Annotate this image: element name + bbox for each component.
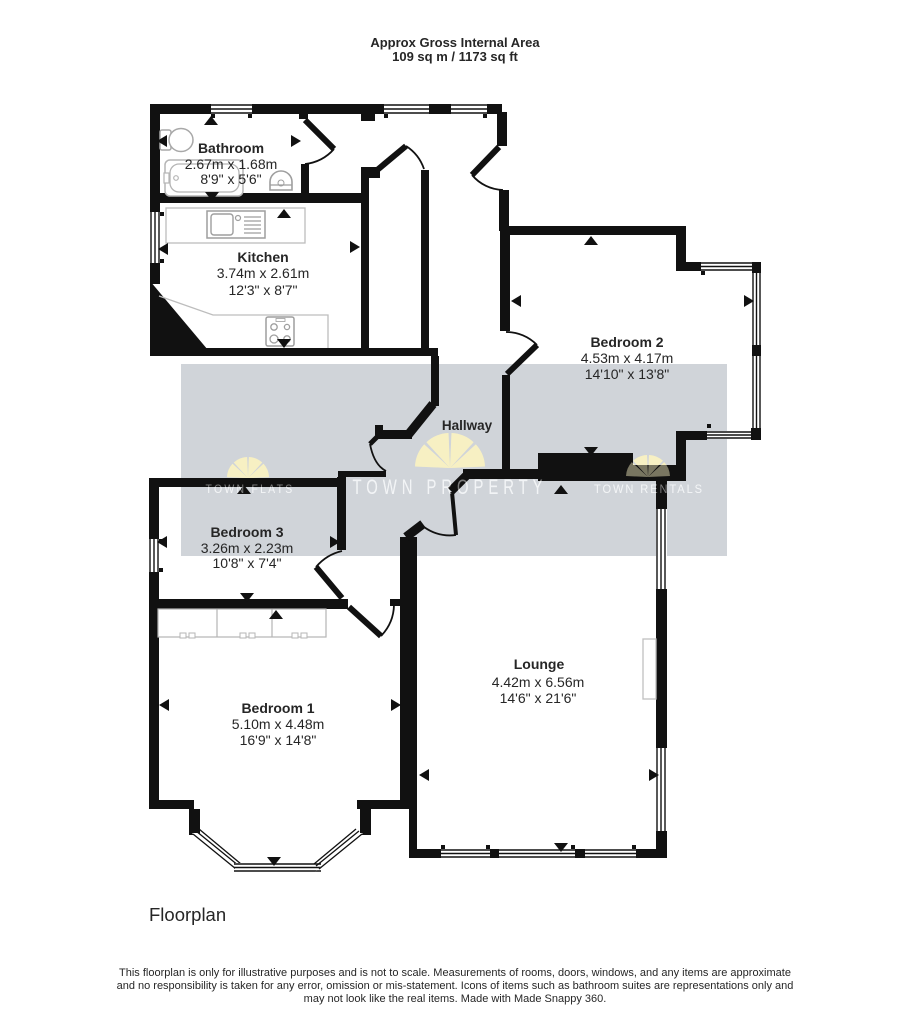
svg-text:5.10m x 4.48m: 5.10m x 4.48m xyxy=(232,716,325,732)
svg-text:Approx Gross Internal Area: Approx Gross Internal Area xyxy=(370,35,540,50)
svg-text:Lounge: Lounge xyxy=(514,656,565,672)
svg-text:3.26m x 2.23m: 3.26m x 2.23m xyxy=(201,540,294,556)
svg-text:14'6" x 21'6": 14'6" x 21'6" xyxy=(500,690,577,706)
svg-text:2.67m x 1.68m: 2.67m x 1.68m xyxy=(185,156,278,172)
svg-text:12'3" x 8'7": 12'3" x 8'7" xyxy=(229,282,298,298)
svg-text:Kitchen: Kitchen xyxy=(237,249,288,265)
svg-text:TOWN PROPERTY: TOWN PROPERTY xyxy=(353,476,548,499)
svg-text:Bedroom 1: Bedroom 1 xyxy=(241,700,314,716)
svg-text:109 sq m / 1173 sq ft: 109 sq m / 1173 sq ft xyxy=(392,49,518,64)
svg-text:4.42m x 6.56m: 4.42m x 6.56m xyxy=(492,674,585,690)
svg-text:Floorplan: Floorplan xyxy=(149,904,226,925)
svg-text:and no responsibility is taken: and no responsibility is taken for any e… xyxy=(117,980,794,992)
svg-text:Bathroom: Bathroom xyxy=(198,140,264,156)
svg-text:Bedroom 3: Bedroom 3 xyxy=(210,524,283,540)
svg-text:Bedroom 2: Bedroom 2 xyxy=(590,334,663,350)
svg-text:TOWN FLATS: TOWN FLATS xyxy=(206,484,295,496)
svg-text:may not look like the real ite: may not look like the real items. Made w… xyxy=(304,993,607,1005)
svg-text:16'9" x 14'8": 16'9" x 14'8" xyxy=(240,732,317,748)
svg-text:14'10" x 13'8": 14'10" x 13'8" xyxy=(585,366,670,382)
svg-text:3.74m x 2.61m: 3.74m x 2.61m xyxy=(217,265,310,281)
svg-text:TOWN RENTALS: TOWN RENTALS xyxy=(594,484,704,496)
svg-text:Hallway: Hallway xyxy=(442,418,493,433)
svg-text:4.53m x 4.17m: 4.53m x 4.17m xyxy=(581,350,674,366)
svg-text:10'8" x 7'4": 10'8" x 7'4" xyxy=(213,555,282,571)
svg-text:8'9" x 5'6": 8'9" x 5'6" xyxy=(200,171,261,187)
svg-text:This floorplan is only for ill: This floorplan is only for illustrative … xyxy=(119,967,791,979)
